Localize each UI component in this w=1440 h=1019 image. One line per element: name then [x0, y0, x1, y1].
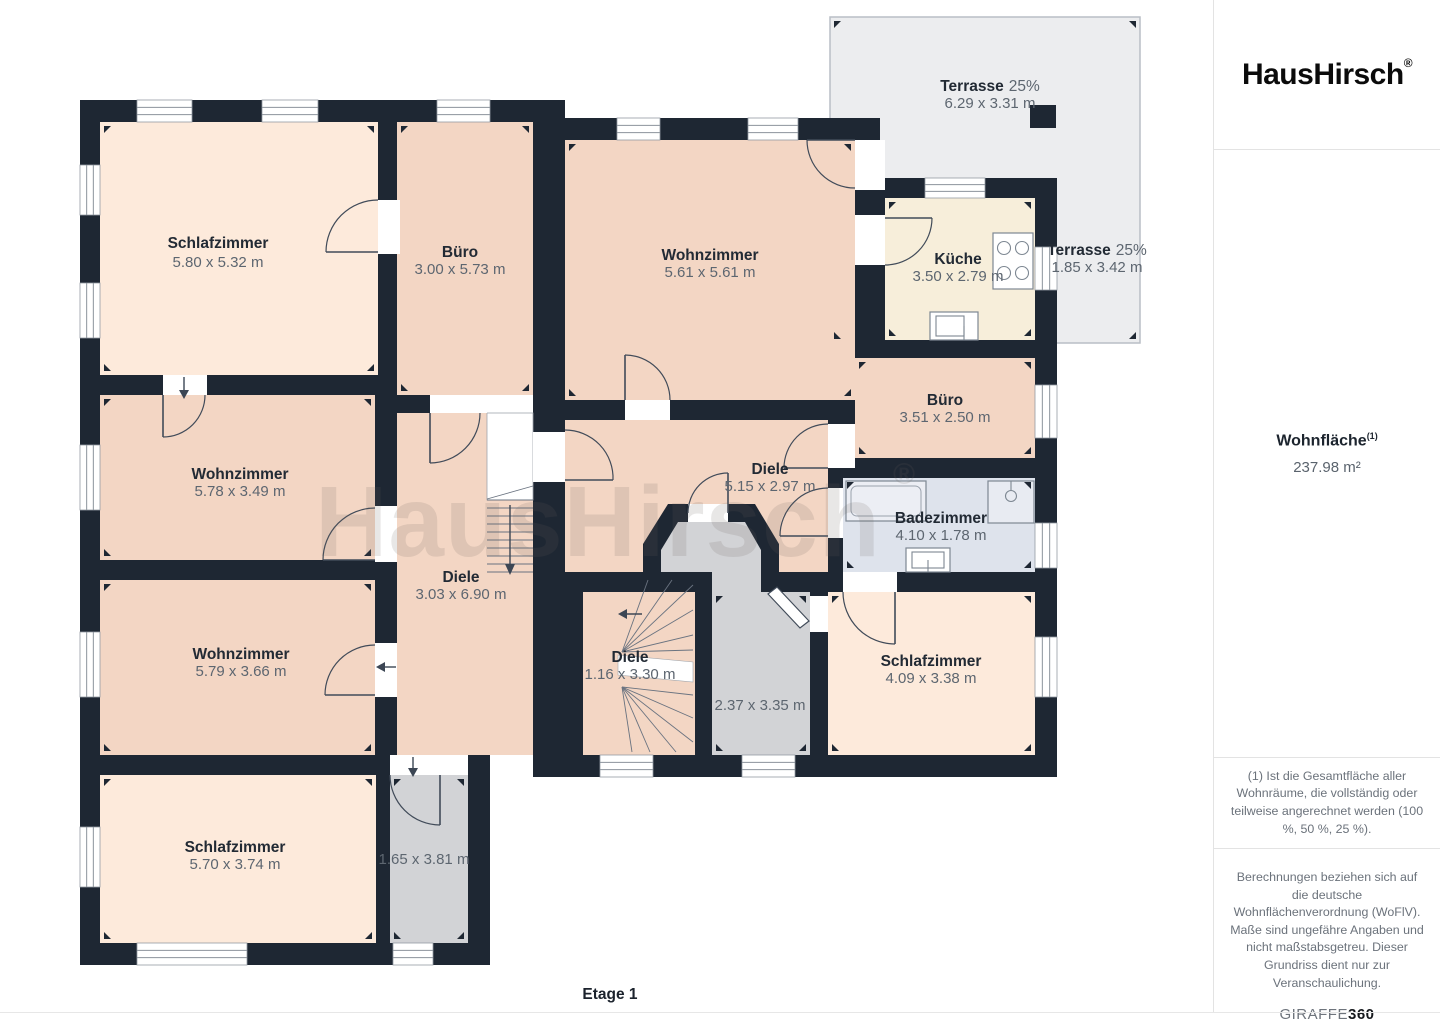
- svg-text:Terrasse25%: Terrasse25%: [1047, 242, 1147, 259]
- svg-text:5.78 x 3.49 m: 5.78 x 3.49 m: [195, 483, 286, 500]
- svg-text:2.37 x 3.35 m: 2.37 x 3.35 m: [715, 697, 806, 714]
- svg-text:5.61 x 5.61 m: 5.61 x 5.61 m: [665, 264, 756, 281]
- svg-text:Badezimmer: Badezimmer: [895, 510, 987, 527]
- svg-text:Terrasse25%: Terrasse25%: [940, 78, 1040, 95]
- room-dims: 5.80 x 5.32 m: [173, 254, 264, 271]
- footnote-disclaimer: Berechnungen beziehen sich auf die deuts…: [1214, 849, 1440, 1011]
- svg-text:4.09 x 3.38 m: 4.09 x 3.38 m: [886, 670, 977, 687]
- living-area-section: Wohnfläche(1) 237.98 m²: [1214, 150, 1440, 758]
- living-area-label: Wohnfläche(1): [1276, 431, 1377, 450]
- svg-text:Diele: Diele: [442, 569, 479, 586]
- brand-name: HausHirsch: [1242, 58, 1404, 91]
- footnote-area: (1) Ist die Gesamtfläche aller Wohnräume…: [1214, 758, 1440, 849]
- svg-text:1.65 x 3.81 m: 1.65 x 3.81 m: [379, 851, 470, 868]
- living-area-value: 237.98 m²: [1293, 459, 1361, 476]
- svg-text:Wohnzimmer: Wohnzimmer: [661, 247, 758, 264]
- floor-plan-svg: HausHirsch ® Schlafzimmer 5.80 x 5.32 m …: [0, 0, 1213, 1012]
- svg-text:4.10 x 1.78 m: 4.10 x 1.78 m: [896, 527, 987, 544]
- shower-icon: [988, 481, 1034, 523]
- svg-text:1.16 x 3.30 m: 1.16 x 3.30 m: [585, 666, 676, 683]
- svg-text:3.50 x 2.79 m: 3.50 x 2.79 m: [913, 268, 1004, 285]
- svg-text:Büro: Büro: [927, 392, 963, 409]
- svg-text:5.70 x 3.74 m: 5.70 x 3.74 m: [190, 856, 281, 873]
- svg-text:Diele: Diele: [611, 649, 648, 666]
- registered-mark: ®: [1404, 56, 1412, 70]
- svg-text:1.85 x 3.42 m: 1.85 x 3.42 m: [1052, 259, 1143, 276]
- svg-text:3.51 x 2.50 m: 3.51 x 2.50 m: [900, 409, 991, 426]
- svg-text:Schlafzimmer: Schlafzimmer: [185, 839, 286, 856]
- floor-label: Etage 1: [510, 986, 710, 1004]
- svg-text:3.00 x 5.73 m: 3.00 x 5.73 m: [415, 261, 506, 278]
- svg-text:Büro: Büro: [442, 244, 478, 261]
- svg-text:Diele: Diele: [751, 461, 788, 478]
- bath-sink-icon: [906, 548, 950, 572]
- watermark-registered: ®: [893, 458, 915, 491]
- kitchen-sink-icon: [930, 312, 978, 340]
- bottom-divider: [0, 1012, 1440, 1013]
- room-label: Schlafzimmer: [168, 235, 269, 252]
- svg-text:Küche: Küche: [934, 251, 982, 268]
- floor-plan-page: HausHirsch ® Schlafzimmer 5.80 x 5.32 m …: [0, 0, 1440, 1019]
- svg-text:3.03 x 6.90 m: 3.03 x 6.90 m: [416, 586, 507, 603]
- svg-text:5.79 x 3.66 m: 5.79 x 3.66 m: [196, 663, 287, 680]
- sidebar: HausHirsch® Wohnfläche(1) 237.98 m² (1) …: [1213, 0, 1440, 1012]
- svg-text:6.29 x 3.31 m: 6.29 x 3.31 m: [945, 95, 1036, 112]
- svg-text:Schlafzimmer: Schlafzimmer: [881, 653, 982, 670]
- svg-text:5.15 x 2.97 m: 5.15 x 2.97 m: [725, 478, 816, 495]
- brand-logo: HausHirsch®: [1214, 0, 1440, 150]
- svg-text:Wohnzimmer: Wohnzimmer: [191, 466, 288, 483]
- svg-text:Wohnzimmer: Wohnzimmer: [192, 646, 289, 663]
